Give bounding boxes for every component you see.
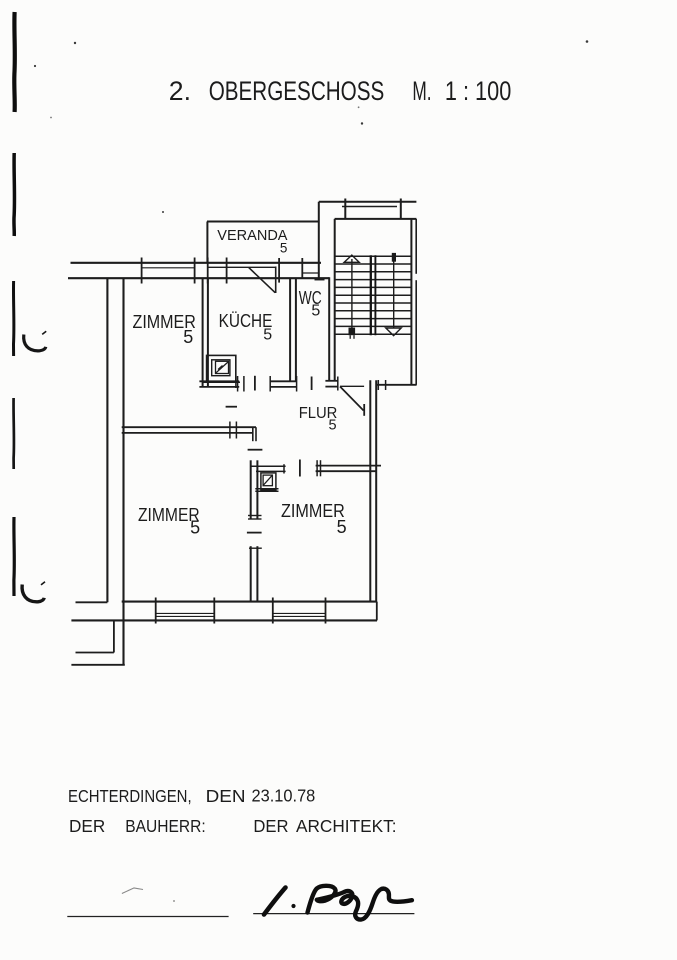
svg-text:5: 5 xyxy=(263,326,272,343)
svg-text:2.: 2. xyxy=(169,76,191,106)
svg-text:ZIMMER: ZIMMER xyxy=(281,501,345,521)
svg-text:OBERGESCHOSS: OBERGESCHOSS xyxy=(209,76,385,106)
svg-text:5: 5 xyxy=(337,517,347,537)
svg-text:DEN: DEN xyxy=(206,786,246,806)
svg-text:ARCHITEKT:: ARCHITEKT: xyxy=(296,816,397,836)
svg-text:5: 5 xyxy=(190,517,200,537)
svg-text:5: 5 xyxy=(183,327,193,347)
svg-text:5: 5 xyxy=(280,241,288,256)
svg-text:5: 5 xyxy=(311,302,320,319)
svg-text:ECHTERDINGEN,: ECHTERDINGEN, xyxy=(68,786,192,806)
svg-text:DER: DER xyxy=(69,816,105,836)
svg-text:VERANDA: VERANDA xyxy=(217,228,287,244)
svg-text:5: 5 xyxy=(329,418,337,434)
svg-text:23.10.78: 23.10.78 xyxy=(252,786,316,806)
svg-text:M.: M. xyxy=(412,76,431,106)
svg-text:DER: DER xyxy=(253,816,288,836)
svg-text:1 : 100: 1 : 100 xyxy=(445,76,511,106)
svg-text:BAUHERR:: BAUHERR: xyxy=(125,816,205,836)
